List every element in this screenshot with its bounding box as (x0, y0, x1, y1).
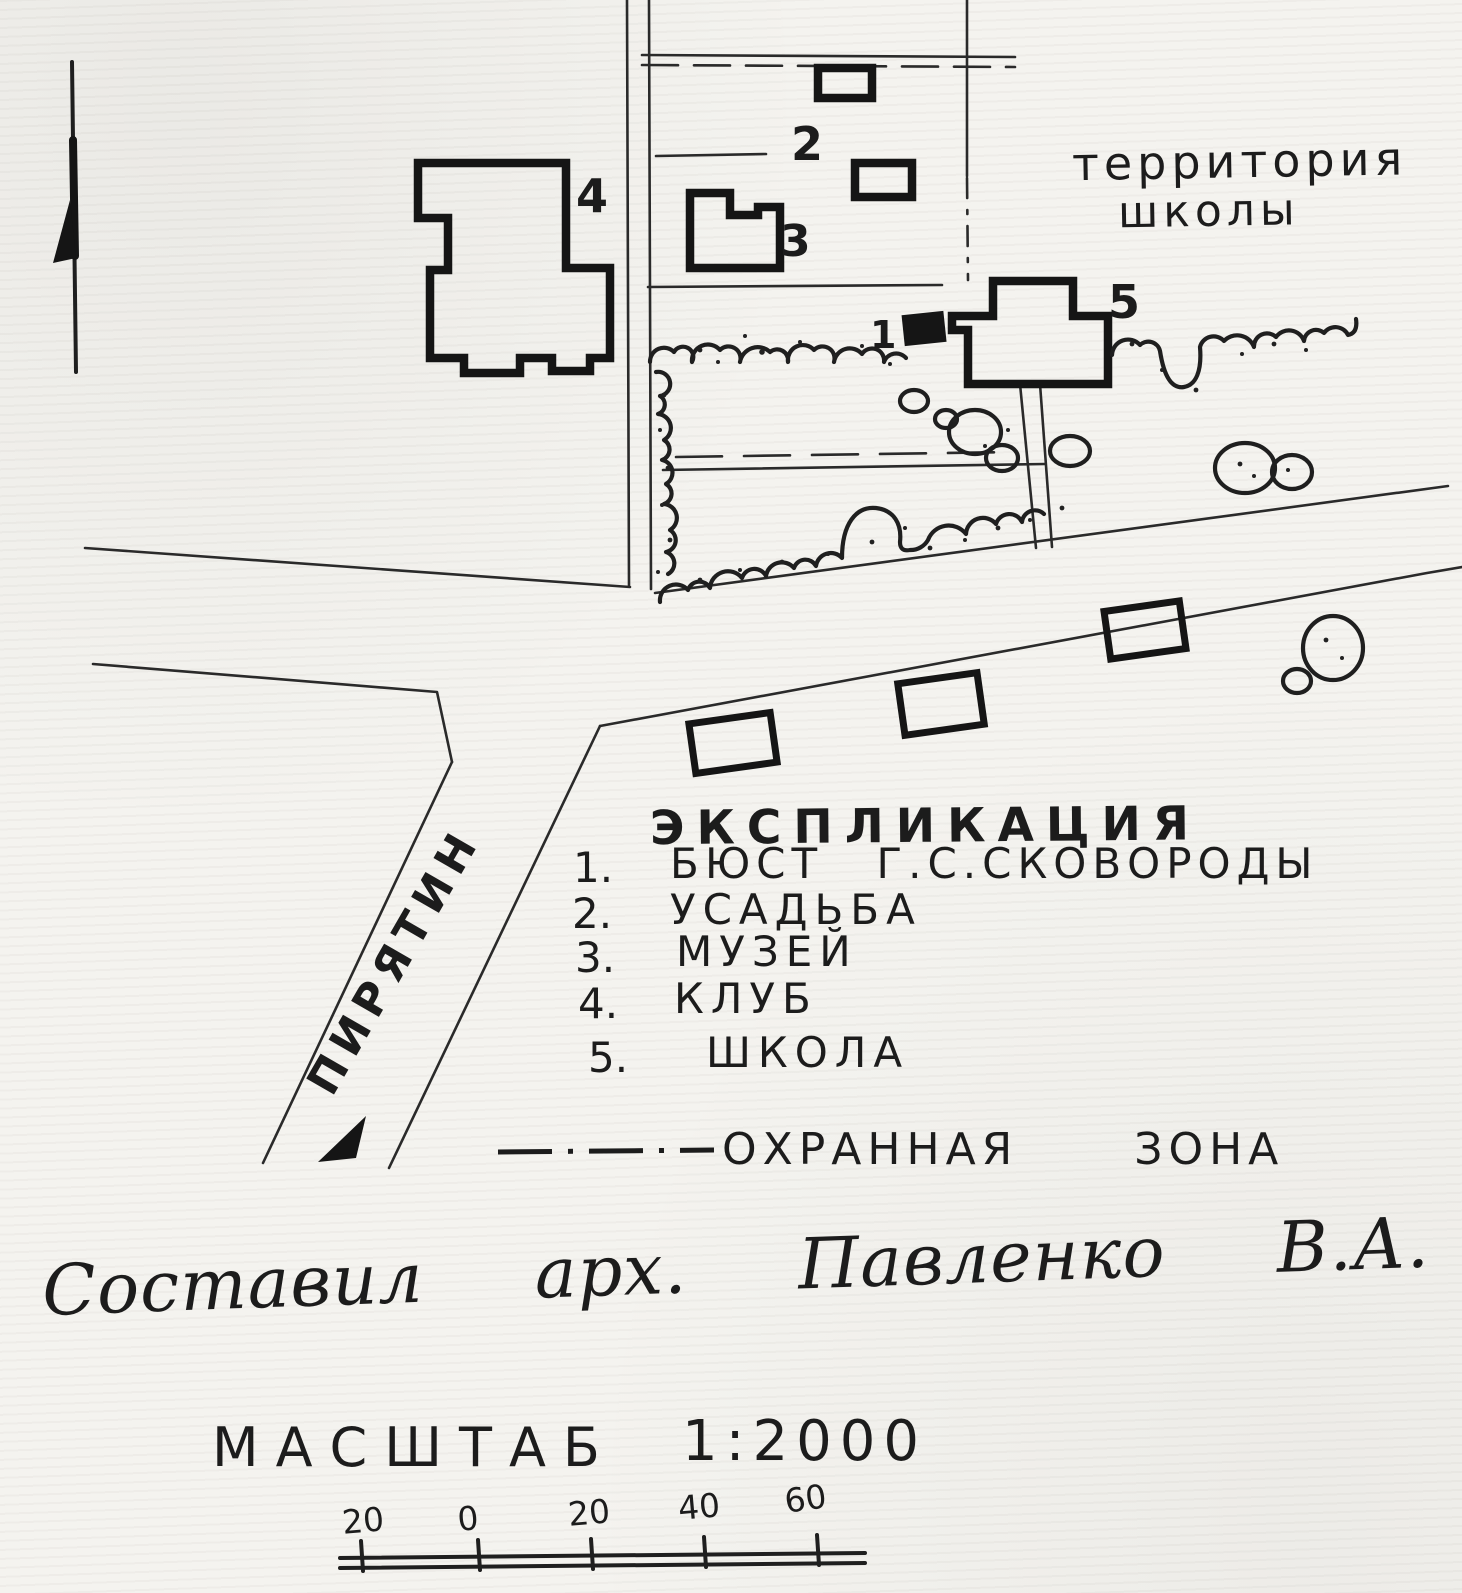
legend-item-label: БЮСТ Г.С.СКОВОРОДЫ (670, 839, 1318, 888)
bushes-left-column (656, 372, 677, 574)
building-school-outline (952, 281, 1108, 384)
scale-bar-label: 40 (676, 1485, 721, 1528)
site-plan-page: территория школы 1 2 3 4 5 ПИРЯТИН ЭКСПЛ… (0, 0, 1462, 1593)
scale-bar-label: 20 (566, 1491, 611, 1534)
marker-label-4: 4 (576, 169, 608, 223)
author-signature: Составил арх. Павленко В.А. 1984г. (41, 1189, 1462, 1332)
territory-label-line1: территория (1072, 131, 1408, 191)
school-walkway (1020, 384, 1052, 548)
scale-ratio: 1:2000 (682, 1409, 927, 1474)
north-arrow-icon (53, 62, 76, 372)
protected-zone-line-sample (498, 1150, 714, 1152)
scale-bar-label: 0 (456, 1498, 480, 1539)
marker-label-5: 5 (1108, 275, 1140, 329)
marker-label-2: 2 (791, 117, 823, 171)
legend-item-num: 3. (575, 933, 615, 982)
bushes-right-row (1112, 319, 1356, 387)
direction-arrow-icon (318, 1116, 366, 1162)
territory-label: территория школы (1072, 131, 1408, 238)
protected-zone-boundary (967, 178, 968, 280)
legend-item-label: МУЗЕЙ (676, 926, 858, 976)
road-destination-label: ПИРЯТИН (297, 819, 491, 1104)
legend: ЭКСПЛИКАЦИЯ 1. БЮСТ Г.С.СКОВОРОДЫ 2. УСА… (498, 796, 1318, 1175)
scale-bar: 20 0 20 40 60 (340, 1476, 865, 1571)
scale-block: МАСШТАБ 1:2000 20 0 20 40 60 (212, 1409, 927, 1571)
legend-item-num: 4. (578, 979, 618, 1028)
building-museum-outline (690, 193, 780, 268)
scale-tick (704, 1537, 706, 1567)
scale-tick (591, 1539, 593, 1569)
marker-label-3: 3 (780, 216, 811, 267)
scale-tick (361, 1541, 363, 1571)
legend-item-num: 5. (588, 1033, 628, 1082)
scale-tick (817, 1535, 819, 1565)
bushes-upper-row (650, 345, 906, 362)
scale-bar-label: 60 (782, 1476, 829, 1520)
bush-clusters (900, 390, 1363, 693)
marker-label-1: 1 (870, 313, 896, 357)
site-plan-drawing: территория школы 1 2 3 4 5 ПИРЯТИН ЭКСПЛ… (0, 0, 1462, 1593)
protected-zone-label: ОХРАННАЯ ЗОНА (722, 1124, 1284, 1175)
territory-label-line2: школы (1118, 184, 1300, 238)
scale-bar-label: 20 (340, 1499, 385, 1542)
scale-tick (478, 1540, 480, 1570)
legend-item-label: КЛУБ (674, 974, 818, 1023)
bust-monument-marker (902, 311, 947, 346)
legend-item-num: 2. (572, 889, 612, 938)
road-structures (689, 601, 1186, 774)
bushes-bottom-row (660, 508, 1044, 602)
legend-item-label: ШКОЛА (706, 1028, 909, 1077)
estate-buildings-outline (818, 68, 912, 197)
legend-item-num: 1. (573, 843, 613, 892)
scale-label: МАСШТАБ (212, 1416, 617, 1479)
